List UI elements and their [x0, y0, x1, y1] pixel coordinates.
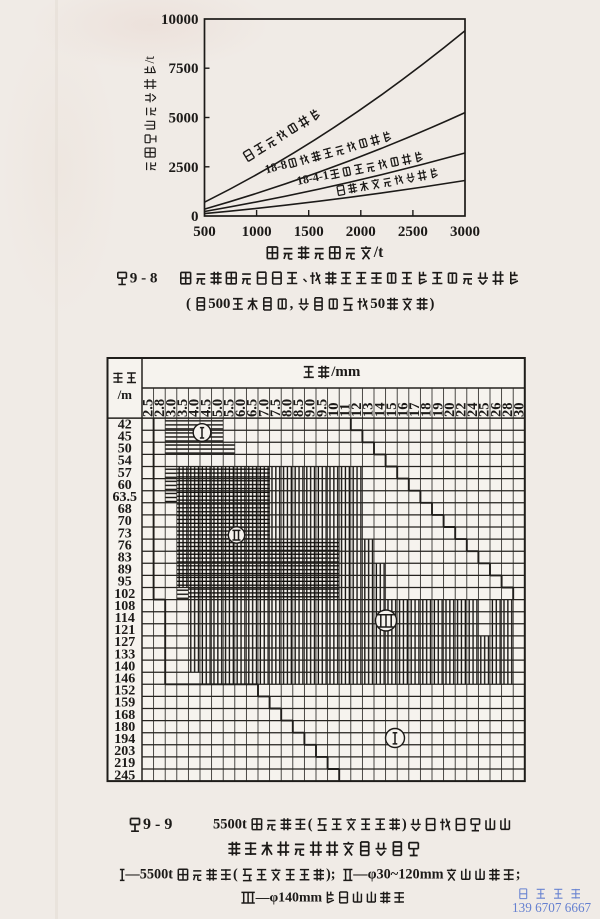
svg-text:245: 245 [114, 768, 135, 783]
svg-text:—φ30~120mm: —φ30~120mm [352, 867, 443, 883]
svg-text:2500: 2500 [169, 160, 199, 176]
svg-text:—5500t: —5500t [124, 867, 173, 883]
svg-text:/t: /t [373, 244, 384, 261]
svg-text:30: 30 [512, 403, 528, 418]
svg-text:/mm: /mm [330, 364, 361, 380]
svg-text:2500: 2500 [398, 224, 428, 240]
svg-text:): ) [402, 816, 407, 832]
svg-text:(: ( [186, 296, 191, 312]
svg-text:(: ( [233, 867, 238, 883]
svg-text:,: , [290, 296, 294, 312]
svg-text:(: ( [308, 816, 313, 832]
svg-text:9 - 8: 9 - 8 [130, 269, 158, 286]
svg-text:);: ); [326, 867, 336, 883]
svg-text:1500: 1500 [294, 224, 324, 240]
svg-text:10000: 10000 [161, 12, 199, 28]
svg-text:5500t: 5500t [213, 816, 247, 832]
svg-text:139 6707 6667: 139 6707 6667 [512, 900, 592, 915]
svg-text:3000: 3000 [450, 224, 480, 240]
svg-text:1000: 1000 [242, 224, 272, 240]
svg-text:9 - 9: 9 - 9 [143, 816, 172, 833]
svg-text:—φ140mm: —φ140mm [255, 890, 323, 905]
svg-text:50: 50 [370, 296, 385, 312]
svg-text:2000: 2000 [346, 224, 376, 240]
svg-text:): ) [430, 296, 435, 312]
svg-text:5000: 5000 [169, 111, 199, 127]
svg-text:500: 500 [193, 224, 216, 240]
svg-text:0: 0 [191, 209, 199, 225]
svg-text:/m: /m [117, 387, 133, 402]
svg-text:;: ; [516, 867, 521, 883]
svg-text:/t: /t [142, 56, 157, 64]
svg-text:500: 500 [208, 296, 230, 312]
svg-text:7500: 7500 [169, 61, 199, 77]
